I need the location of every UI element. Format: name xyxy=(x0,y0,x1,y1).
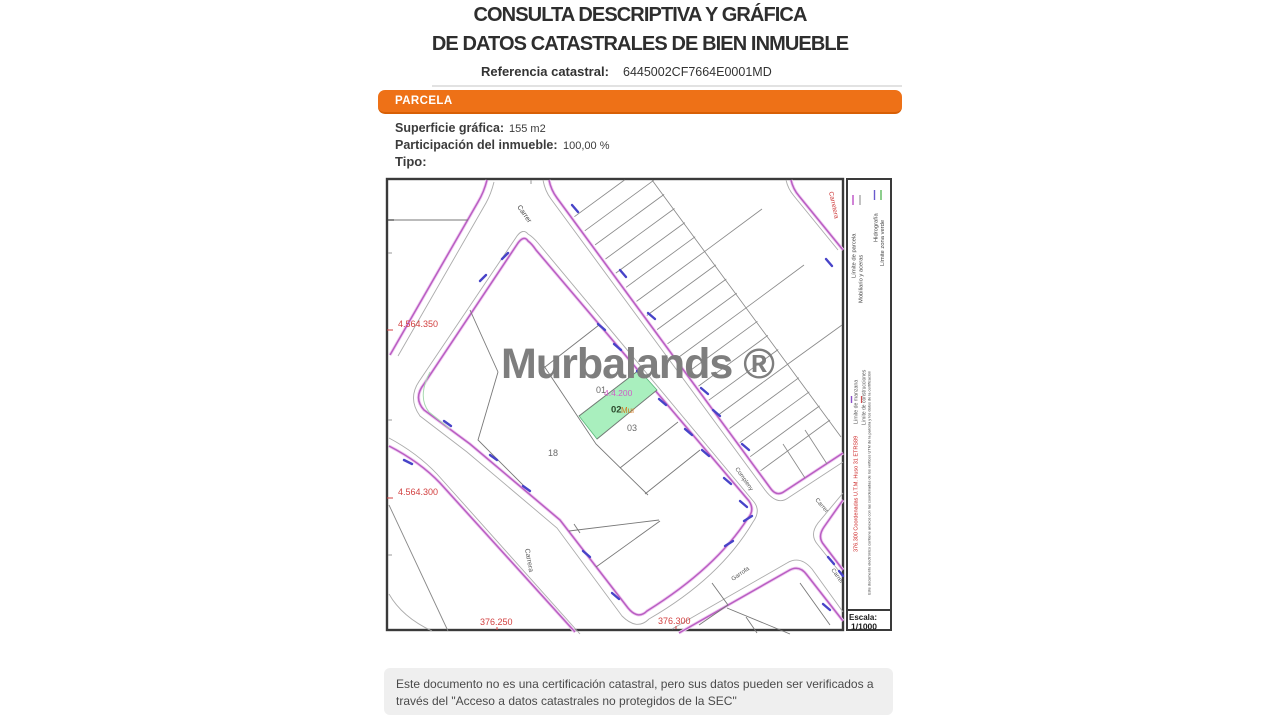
svg-text:Mur: Mur xyxy=(621,406,635,415)
svg-text:18: 18 xyxy=(548,448,558,458)
svg-text:4.4.200: 4.4.200 xyxy=(604,388,633,398)
svg-text:02: 02 xyxy=(611,405,622,416)
svg-text:Hidrografía: Hidrografía xyxy=(874,213,880,242)
svg-text:Murbalands ®: Murbalands ® xyxy=(501,340,775,388)
svg-text:Límite de manzana: Límite de manzana xyxy=(854,380,860,424)
svg-text:Límite de parcela: Límite de parcela xyxy=(852,233,858,278)
svg-text:Mobiliario y aceras: Mobiliario y aceras xyxy=(859,255,865,303)
svg-text:4.564.300: 4.564.300 xyxy=(398,487,438,497)
svg-text:376.300: 376.300 xyxy=(658,616,691,626)
svg-text:Límite zona verde: Límite zona verde xyxy=(880,220,886,266)
svg-text:4.564.350: 4.564.350 xyxy=(398,319,438,329)
svg-text:376.250: 376.250 xyxy=(480,617,513,627)
svg-text:376.300 Coordenadas U.T.M. Hus: 376.300 Coordenadas U.T.M. Huso 31 ETRS8… xyxy=(854,436,860,552)
svg-text:Este documento electrónico con: Este documento electrónico contiene anex… xyxy=(867,371,872,595)
svg-text:1/1000: 1/1000 xyxy=(851,622,877,632)
svg-text:03: 03 xyxy=(627,423,637,433)
